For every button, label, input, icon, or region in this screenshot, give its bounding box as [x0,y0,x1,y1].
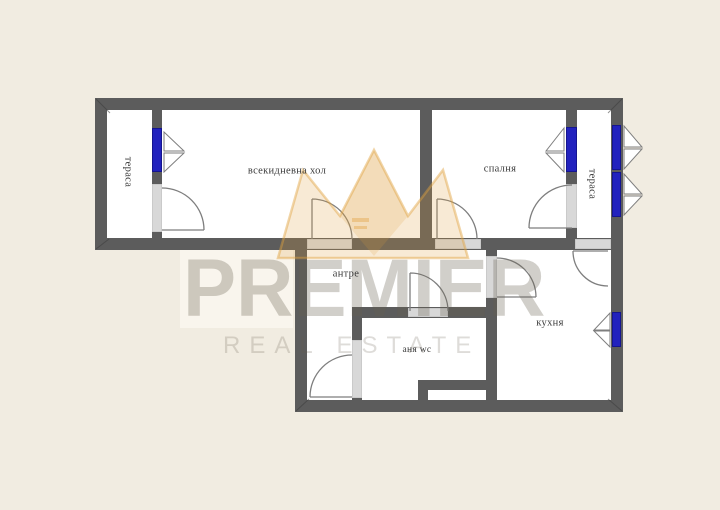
watermark-tagline: REAL ESTATE [223,334,480,358]
room-label-kitchen: кухня [536,318,563,329]
watermark-brand: PREMIER [183,248,545,330]
door-arc-bedroom-terrace [529,185,572,228]
floorplan-page: { "floorplan": { "rooms": [ {"id": "terr… [0,0,720,510]
room-label-hallway: антре [333,269,359,280]
room-label-living-room: всекидневна хол [248,166,326,177]
door-arc-kitchen-terrace [573,251,608,286]
room-label-bedroom: спалня [484,164,517,175]
door-arc-terrace-left [162,188,204,230]
room-label-terrace-right: тераса [587,169,598,199]
room-label-bathroom: аня wc [403,345,432,355]
door-arc-bathroom-side [310,355,352,397]
room-label-terrace-left: тераса [123,157,134,187]
